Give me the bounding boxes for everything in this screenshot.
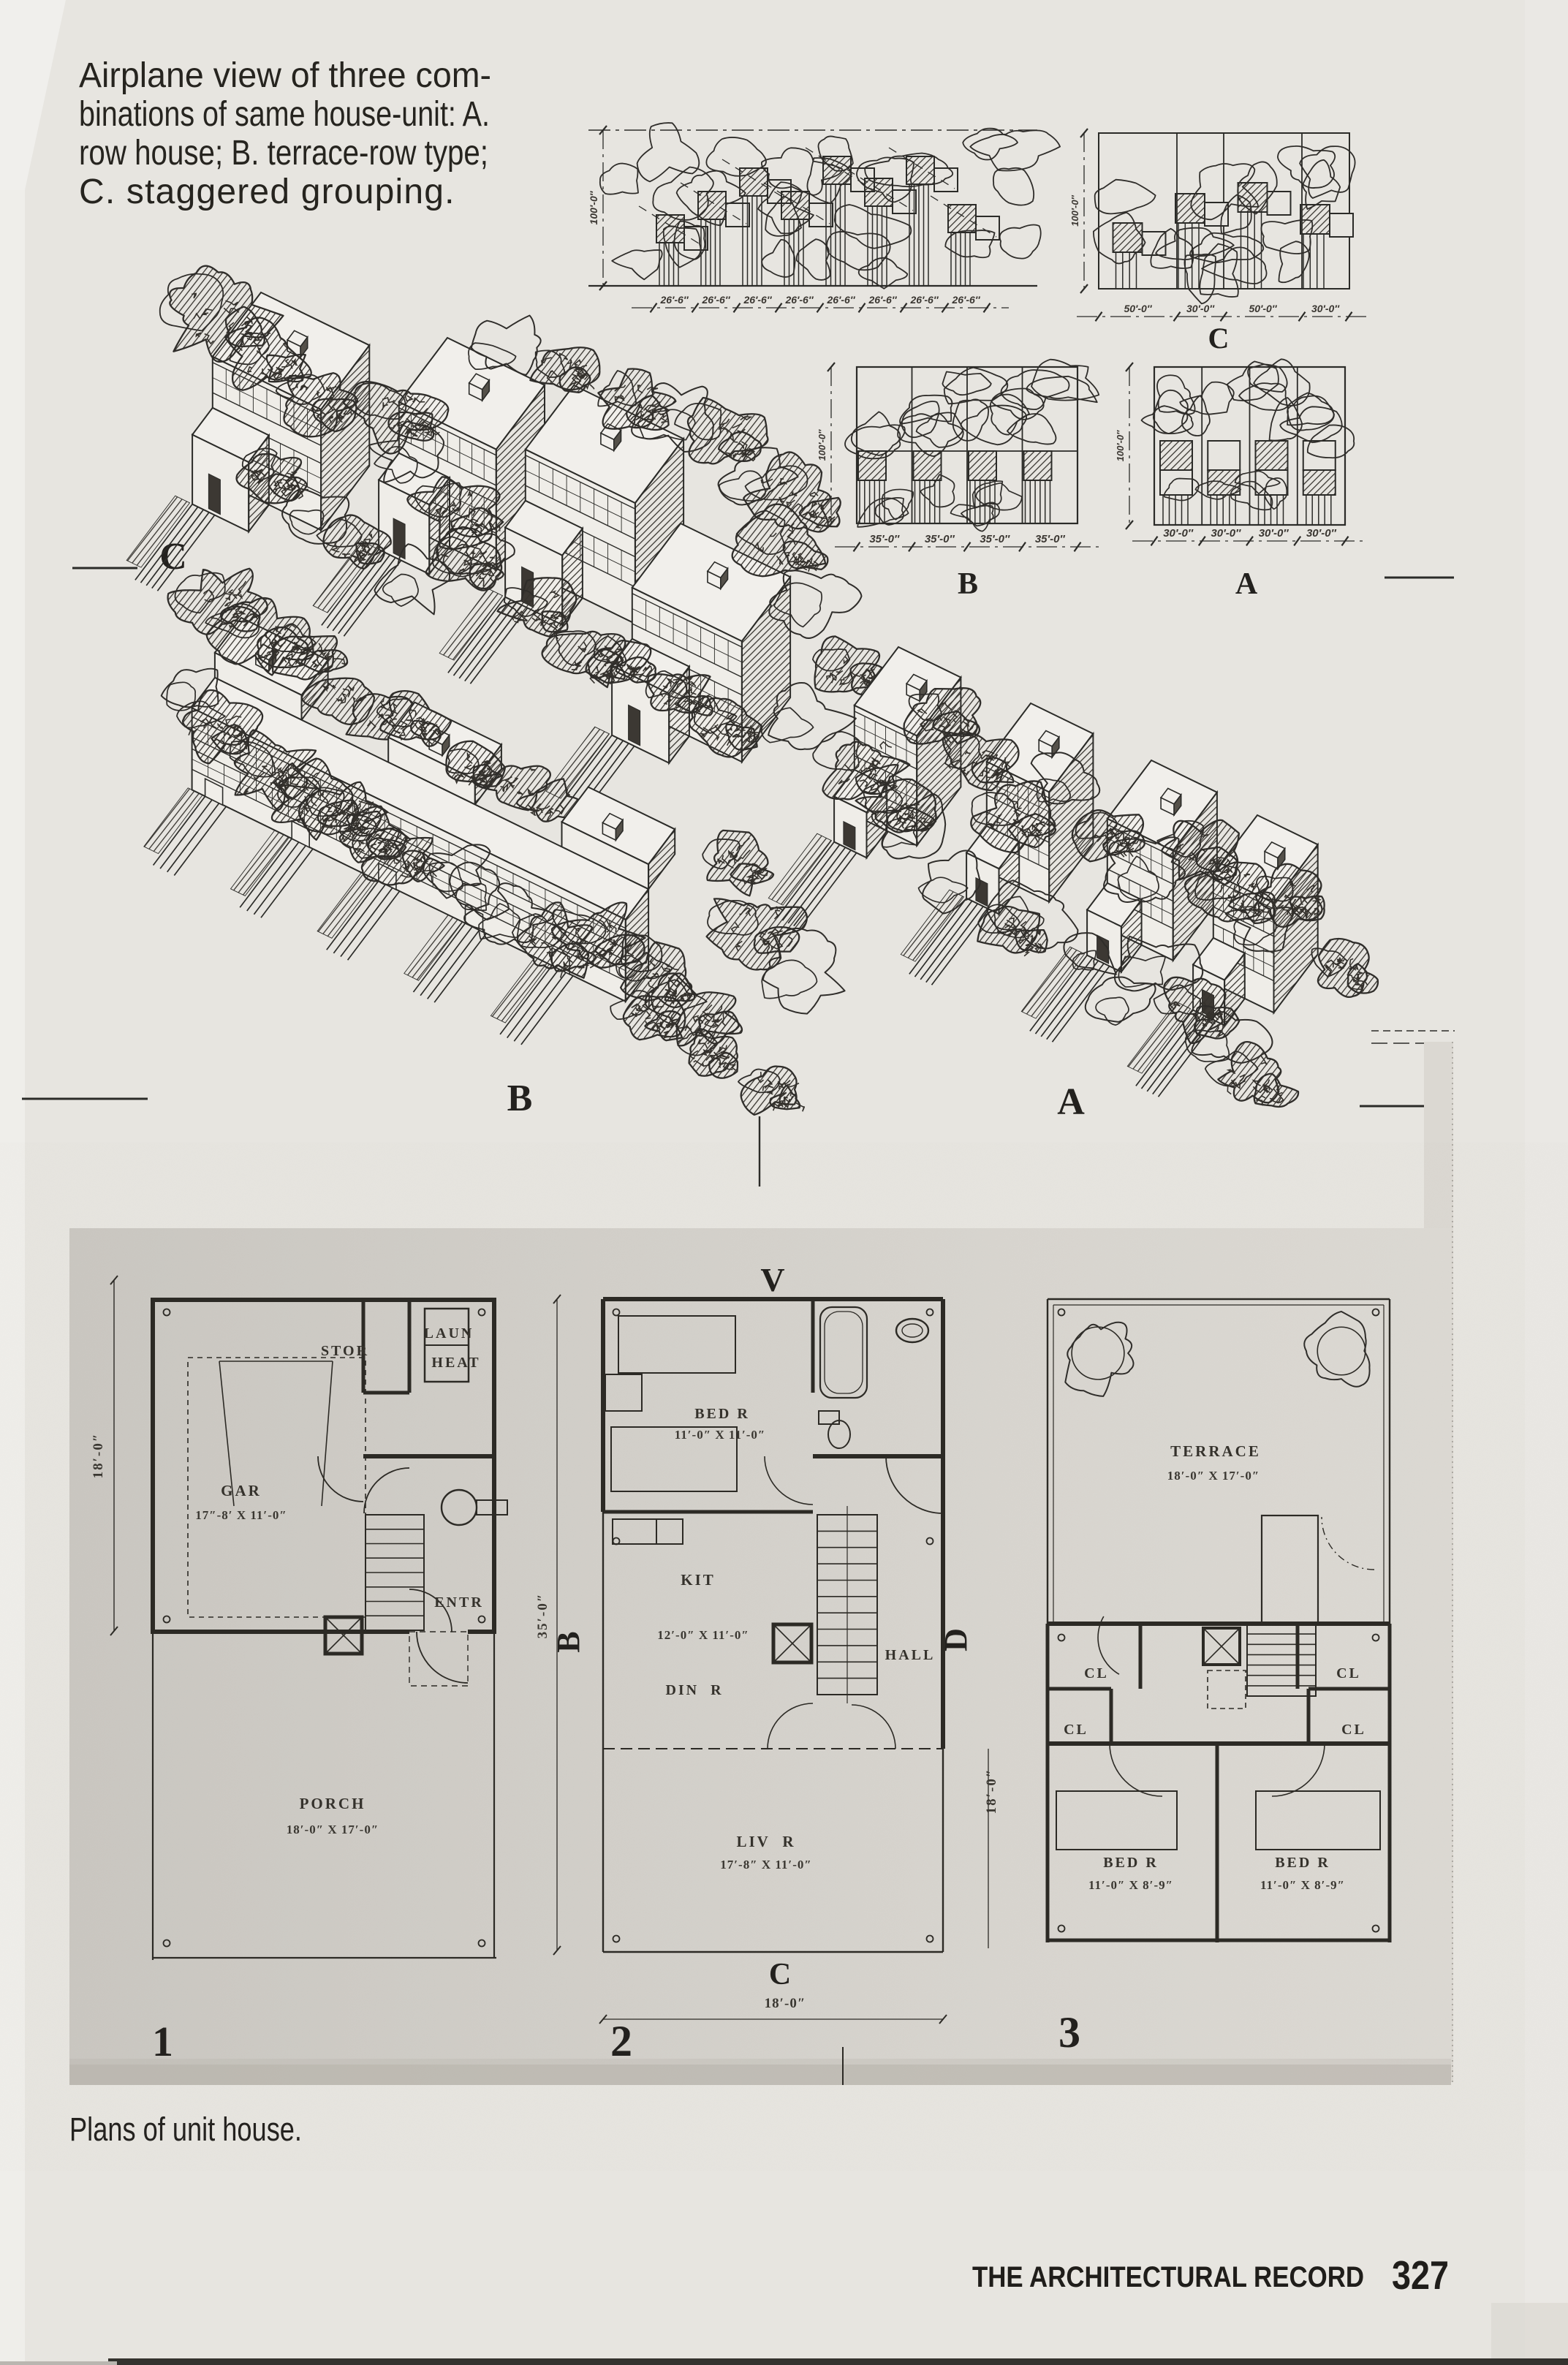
svg-text:26′-6″: 26′-6″ [826, 294, 855, 306]
svg-text:DIN R: DIN R [665, 1682, 723, 1698]
svg-text:30′-0″: 30′-0″ [1311, 303, 1340, 314]
svg-text:327: 327 [1392, 2252, 1449, 2298]
svg-text:binations of same house-unit:: binations of same house-unit: A. [79, 95, 490, 134]
svg-text:26′-6″: 26′-6″ [784, 294, 814, 306]
svg-text:50′-0″: 50′-0″ [1249, 303, 1277, 314]
svg-text:LAUN: LAUN [424, 1325, 474, 1342]
svg-text:18′-0″ X 17′-0″: 18′-0″ X 17′-0″ [287, 1823, 379, 1836]
svg-text:30′-0″: 30′-0″ [1259, 527, 1289, 540]
svg-text:THE ARCHITECTURAL RECORD: THE ARCHITECTURAL RECORD [972, 2261, 1364, 2293]
svg-text:A: A [1057, 1081, 1086, 1123]
svg-text:Airplane view of three com-: Airplane view of three com- [79, 56, 491, 95]
svg-text:CL: CL [1336, 1665, 1361, 1681]
svg-text:11′-0″ X 8′-9″: 11′-0″ X 8′-9″ [1260, 1878, 1345, 1892]
svg-text:C. staggered grouping.: C. staggered grouping. [79, 173, 455, 211]
svg-text:BED R: BED R [1275, 1855, 1330, 1871]
svg-text:B: B [550, 1630, 586, 1652]
svg-text:GAR: GAR [221, 1482, 262, 1499]
svg-text:30′-0″: 30′-0″ [1211, 527, 1241, 540]
svg-text:HEAT: HEAT [431, 1355, 480, 1371]
svg-text:CL: CL [1341, 1722, 1366, 1738]
svg-text:18′-0″: 18′-0″ [984, 1768, 999, 1815]
svg-text:C: C [1208, 322, 1231, 355]
svg-text:50′-0″: 50′-0″ [1124, 303, 1152, 314]
svg-text:CL: CL [1084, 1665, 1109, 1681]
svg-text:HALL: HALL [885, 1647, 936, 1663]
svg-text:A: A [1235, 567, 1259, 601]
svg-text:30′-0″: 30′-0″ [1186, 303, 1215, 314]
svg-text:PORCH: PORCH [300, 1795, 366, 1812]
svg-text:12′-0″ X 11′-0″: 12′-0″ X 11′-0″ [657, 1628, 749, 1642]
svg-text:30′-0″: 30′-0″ [1163, 527, 1194, 540]
svg-text:11′-0″ X 8′-9″: 11′-0″ X 8′-9″ [1088, 1878, 1173, 1892]
svg-text:26′-6″: 26′-6″ [951, 294, 980, 306]
svg-text:35′-0″: 35′-0″ [869, 533, 900, 545]
svg-text:35′-0″: 35′-0″ [925, 533, 955, 545]
svg-text:100′-0″: 100′-0″ [1115, 430, 1126, 461]
svg-text:KIT: KIT [681, 1571, 716, 1589]
svg-text:B: B [958, 567, 980, 601]
svg-text:ENTR: ENTR [434, 1594, 484, 1611]
svg-text:26′-6″: 26′-6″ [701, 294, 730, 306]
svg-text:26′-6″: 26′-6″ [743, 294, 772, 306]
svg-text:26′-6″: 26′-6″ [909, 294, 939, 306]
svg-text:C: C [769, 1958, 792, 1991]
svg-text:18′-0″: 18′-0″ [91, 1433, 106, 1479]
svg-text:row house; B. terrace-row type: row house; B. terrace-row type; [79, 134, 488, 173]
svg-text:18′-0″ X 17′-0″: 18′-0″ X 17′-0″ [1167, 1469, 1260, 1483]
svg-text:30′-0″: 30′-0″ [1306, 527, 1337, 540]
svg-text:LIV R: LIV R [736, 1833, 795, 1850]
svg-text:TERRACE: TERRACE [1170, 1442, 1261, 1460]
svg-text:17′-8″ X 11′-0″: 17′-8″ X 11′-0″ [720, 1858, 812, 1872]
svg-text:17″-8′ X 11′-0″: 17″-8′ X 11′-0″ [195, 1508, 287, 1522]
svg-text:26′-6″: 26′-6″ [659, 294, 689, 306]
svg-text:D: D [938, 1627, 974, 1651]
svg-text:B: B [507, 1078, 534, 1119]
svg-text:1: 1 [152, 2018, 175, 2065]
svg-text:100′-0″: 100′-0″ [1069, 194, 1080, 226]
svg-text:2: 2 [610, 2017, 634, 2065]
svg-text:35′-0″: 35′-0″ [980, 533, 1010, 545]
svg-text:3: 3 [1058, 2008, 1082, 2056]
svg-text:BED R: BED R [694, 1406, 750, 1422]
svg-text:Plans of unit house.: Plans of unit house. [69, 2111, 302, 2148]
svg-text:11′-0″ X 11′-0″: 11′-0″ X 11′-0″ [675, 1428, 766, 1442]
svg-text:18′-0″: 18′-0″ [765, 1996, 806, 2011]
svg-text:100′-0″: 100′-0″ [817, 429, 827, 461]
svg-text:26′-6″: 26′-6″ [868, 294, 897, 306]
svg-text:100′-0″: 100′-0″ [588, 190, 599, 224]
svg-text:35′-0″: 35′-0″ [535, 1593, 550, 1639]
svg-text:STOR: STOR [321, 1343, 369, 1359]
svg-text:V: V [760, 1261, 786, 1298]
svg-text:CL: CL [1064, 1722, 1088, 1738]
svg-text:35′-0″: 35′-0″ [1035, 533, 1066, 545]
svg-text:BED R: BED R [1103, 1855, 1159, 1871]
